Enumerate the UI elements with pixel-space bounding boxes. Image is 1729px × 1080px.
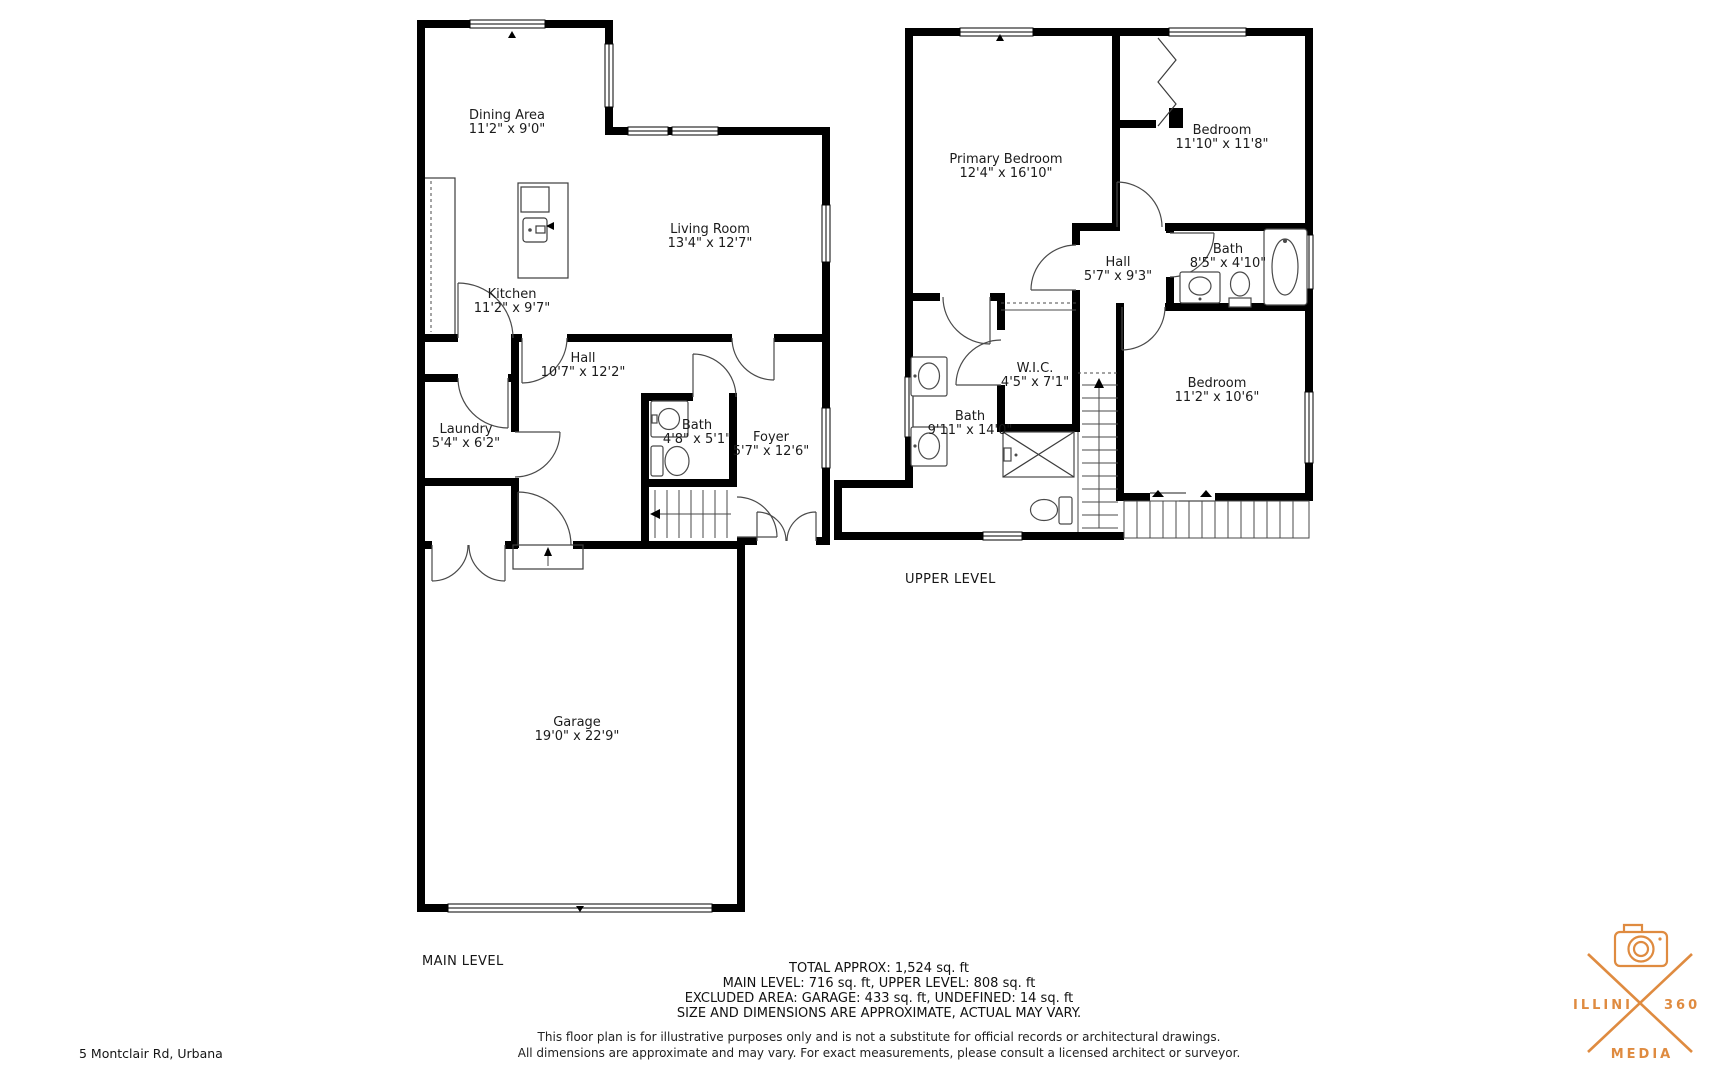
room-name: Foyer [733,431,809,445]
logo-word-left: ILLINI [1573,998,1633,1013]
upper-level-label: UPPER LEVEL [905,572,996,587]
room-name: Garage [535,716,620,730]
lower-hatch-strip [1124,501,1309,538]
disclaimer-line-2: All dimensions are approximate and may v… [518,1045,1241,1061]
room-dims: 12'4" x 16'10" [949,167,1062,181]
room-dims: 11'10" x 11'8" [1176,138,1269,152]
room-dims: 8'5" x 4'10" [1190,257,1266,271]
total-approx: TOTAL APPROX: 1,524 sq. ft [518,961,1241,976]
logo-word-bottom: MEDIA [1611,1047,1674,1062]
main-markers [508,31,584,912]
room-label-primary-bedroom: Primary Bedroom 12'4" x 16'10" [949,153,1062,180]
room-dims: 9'11" x 14'0" [928,424,1013,438]
floor-plan-page: Dining Area 11'2" x 9'0" Living Room 13'… [0,0,1729,1080]
upper-stairs [1078,373,1120,532]
room-name: Dining Area [469,109,545,123]
room-label-living-room: Living Room 13'4" x 12'7" [668,223,753,250]
room-name: Hall [1084,256,1152,270]
main-level-plan [405,10,845,925]
room-label-bedroom-2: Bedroom 11'10" x 11'8" [1176,124,1269,151]
room-name: Bath [663,419,731,433]
main-level-label: MAIN LEVEL [422,954,504,969]
level-areas: MAIN LEVEL: 716 sq. ft, UPPER LEVEL: 808… [518,976,1241,991]
wic-rod [1001,303,1076,310]
room-dims: 11'2" x 9'7" [474,302,550,316]
room-label-bedroom-3: Bedroom 11'2" x 10'6" [1175,377,1260,404]
camera-icon [1615,925,1667,966]
logo-word-right: 360 [1664,998,1700,1013]
room-name: Kitchen [474,288,550,302]
room-dims: 4'8" x 5'1" [663,433,731,447]
main-walls [417,20,830,912]
spacer [518,1021,1241,1029]
property-address: 5 Montclair Rd, Urbana [79,1046,223,1061]
room-label-kitchen: Kitchen 11'2" x 9'7" [474,288,550,315]
room-name: Bath [1190,243,1266,257]
room-label-hall-main: Hall 10'7" x 12'2" [541,352,626,379]
room-label-bath-upper-hall: Bath 8'5" x 4'10" [1190,243,1266,270]
entry-step [513,545,583,569]
room-dims: 13'4" x 12'7" [668,237,753,251]
room-label-bath-ensuite: Bath 9'11" x 14'0" [928,410,1013,437]
room-name: Bedroom [1176,124,1269,138]
summary-block: TOTAL APPROX: 1,524 sq. ft MAIN LEVEL: 7… [518,961,1241,1061]
room-dims: 11'2" x 10'6" [1175,391,1260,405]
size-note: SIZE AND DIMENSIONS ARE APPROXIMATE, ACT… [518,1006,1241,1021]
room-label-garage: Garage 19'0" x 22'9" [535,716,620,743]
room-dims: 5'7" x 12'6" [733,445,809,459]
room-dims: 10'7" x 12'2" [541,366,626,380]
disclaimer-line-1: This floor plan is for illustrative purp… [518,1029,1241,1045]
main-stairs [650,490,731,538]
room-label-dining-area: Dining Area 11'2" x 9'0" [469,109,545,136]
main-windows [448,20,830,912]
room-dims: 5'4" x 6'2" [432,437,500,451]
room-name: W.I.C. [1001,362,1069,376]
room-name: Primary Bedroom [949,153,1062,167]
room-label-bath-main: Bath 4'8" x 5'1" [663,419,731,446]
room-label-hall-upper: Hall 5'7" x 9'3" [1084,256,1152,283]
room-dims: 5'7" x 9'3" [1084,270,1152,284]
upper-level-plan [815,15,1325,555]
room-name: Hall [541,352,626,366]
room-name: Living Room [668,223,753,237]
room-name: Laundry [432,423,500,437]
room-name: Bath [928,410,1013,424]
illini-360-media-logo: ILLINI 360 MEDIA [1565,912,1715,1072]
excluded-areas: EXCLUDED AREA: GARAGE: 433 sq. ft, UNDEF… [518,991,1241,1006]
room-dims: 4'5" x 7'1" [1001,376,1069,390]
room-label-laundry: Laundry 5'4" x 6'2" [432,423,500,450]
room-dims: 19'0" x 22'9" [535,730,620,744]
room-label-foyer: Foyer 5'7" x 12'6" [733,431,809,458]
room-label-wic: W.I.C. 4'5" x 7'1" [1001,362,1069,389]
room-dims: 11'2" x 9'0" [469,123,545,137]
room-name: Bedroom [1175,377,1260,391]
